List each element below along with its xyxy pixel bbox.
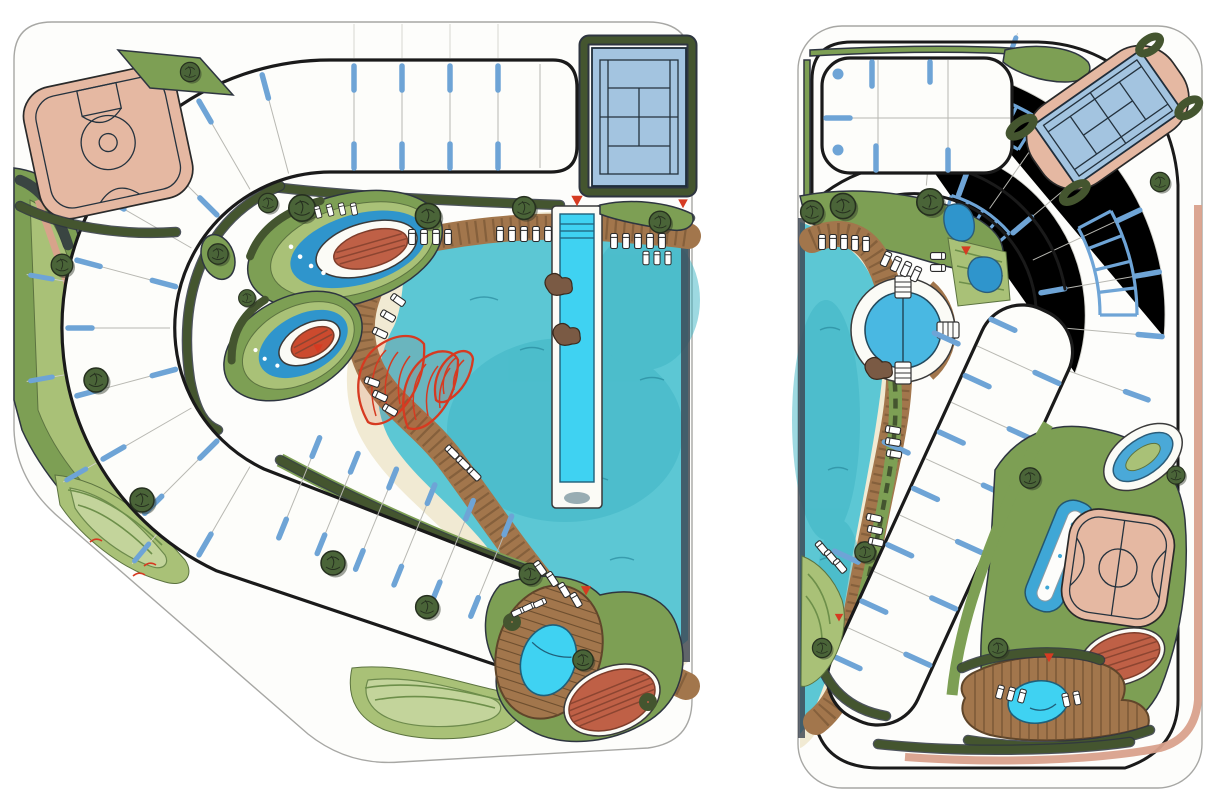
water-cut-edge — [681, 214, 690, 662]
east-scheme-plan — [775, 26, 1207, 788]
entry-court-pad — [822, 58, 1012, 173]
west-scheme-plan — [14, 22, 700, 762]
masterplan-canvas — [0, 0, 1207, 802]
pier-lap-pool — [545, 206, 602, 508]
masterplan-drawing — [0, 0, 1207, 802]
basketball-court-east — [1058, 505, 1179, 631]
circular-plunge-pool — [851, 276, 959, 384]
tennis-court — [584, 40, 692, 192]
